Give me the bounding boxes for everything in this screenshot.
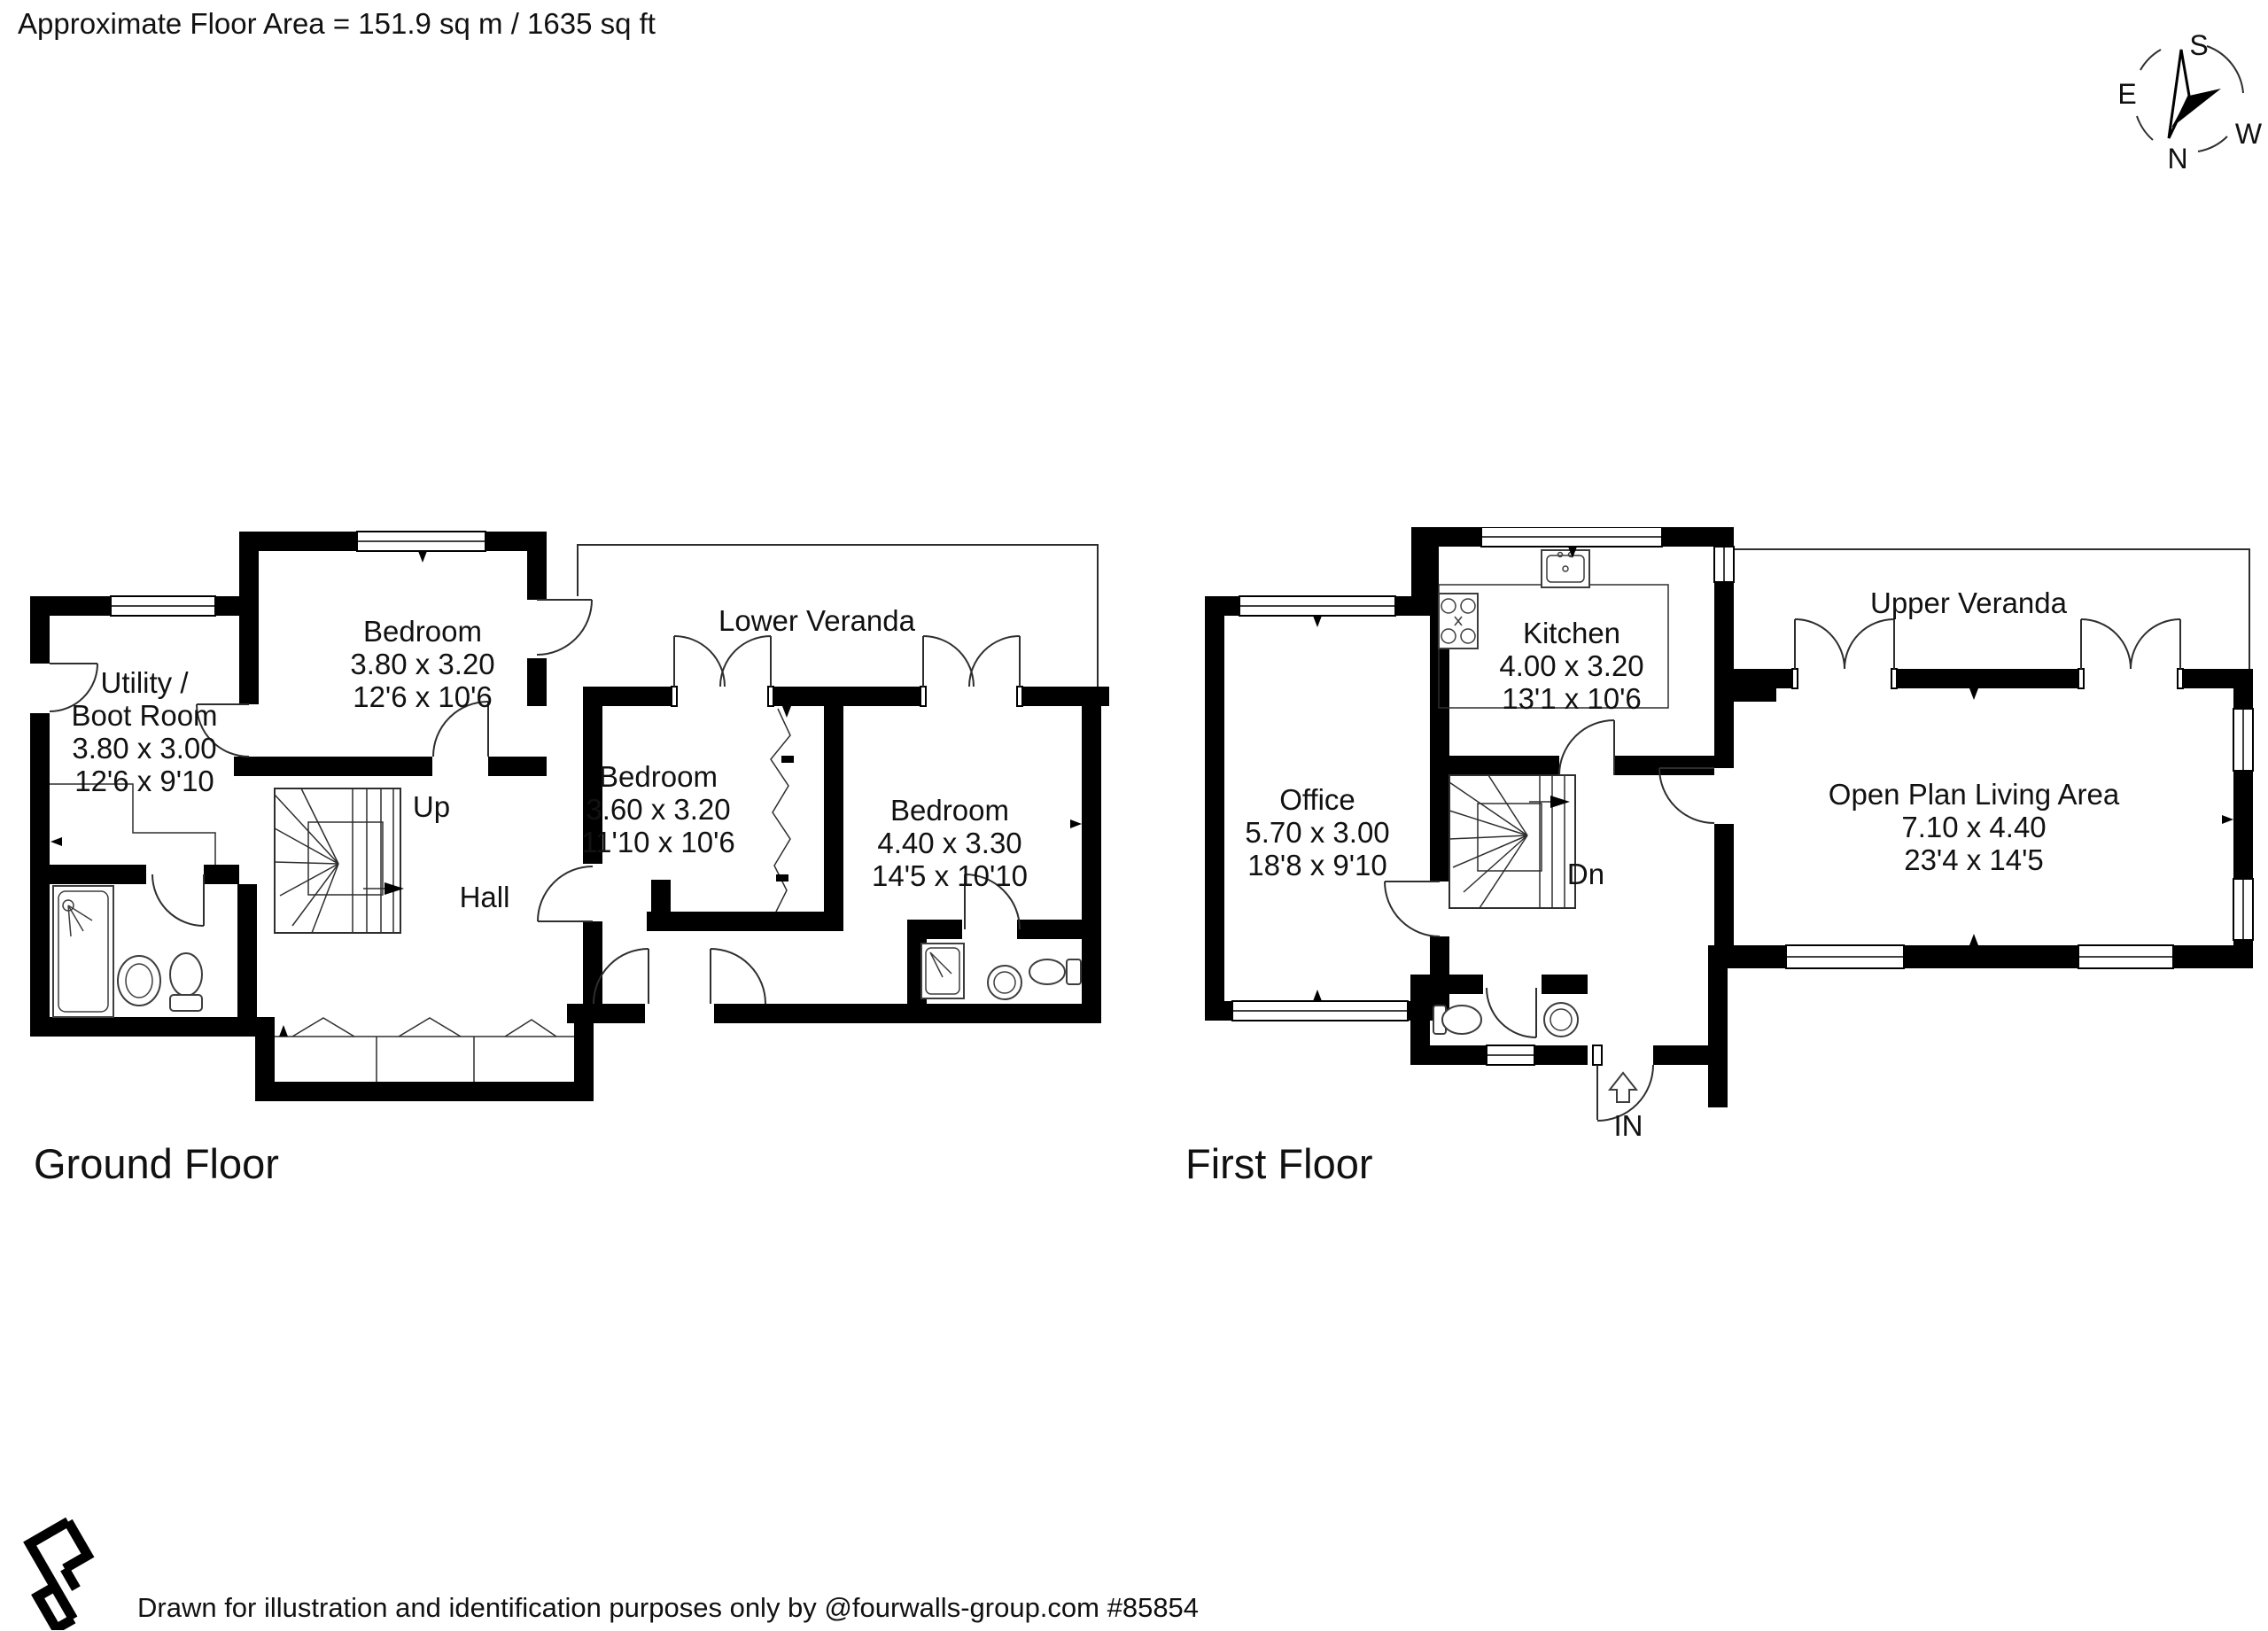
label-hall: Hall <box>460 881 510 914</box>
compass-north: N <box>2167 143 2187 175</box>
room-label-utility: Utility / Boot Room 3.80 x 3.00 12'6 x 9… <box>71 666 217 797</box>
compass-west: W <box>2235 118 2263 150</box>
room-label-kitchen: Kitchen 4.00 x 3.20 13'1 x 10'6 <box>1499 617 1643 715</box>
compass-rose: S E W N <box>2113 19 2268 179</box>
label-entrance-in: IN <box>1614 1109 1643 1143</box>
room-label-bedroom2: Bedroom 3.60 x 3.20 11'10 x 10'6 <box>581 760 734 858</box>
first-floor-title: First Floor <box>1185 1139 1373 1188</box>
ground-stairs <box>275 788 404 933</box>
label-stairs-up: Up <box>413 790 450 824</box>
label-lower-veranda: Lower Veranda <box>718 604 915 638</box>
room-label-living: Open Plan Living Area 7.10 x 4.40 23'4 x… <box>1829 778 2119 876</box>
entrance-arrow-icon <box>1610 1073 1636 1102</box>
label-upper-veranda: Upper Veranda <box>1870 586 2067 620</box>
compass-east: E <box>2117 78 2136 110</box>
compass-needle-icon <box>2169 50 2221 138</box>
room-label-bedroom1: Bedroom 3.80 x 3.20 12'6 x 10'6 <box>350 615 494 713</box>
room-label-office: Office 5.70 x 3.00 18'8 x 9'10 <box>1245 783 1389 882</box>
floor-area-text: Approximate Floor Area = 151.9 sq m / 16… <box>18 7 656 41</box>
compass-south: S <box>2189 29 2208 61</box>
disclaimer-text: Drawn for illustration and identificatio… <box>137 1592 1199 1624</box>
first-stairs <box>1449 775 1575 908</box>
ground-floor-title: Ground Floor <box>34 1139 279 1188</box>
fourwalls-logo <box>11 1517 117 1630</box>
label-stairs-dn: Dn <box>1567 858 1604 891</box>
floorplan-page: Approximate Floor Area = 151.9 sq m / 16… <box>0 0 2268 1631</box>
room-label-bedroom3: Bedroom 4.40 x 3.30 14'5 x 10'10 <box>872 794 1028 892</box>
